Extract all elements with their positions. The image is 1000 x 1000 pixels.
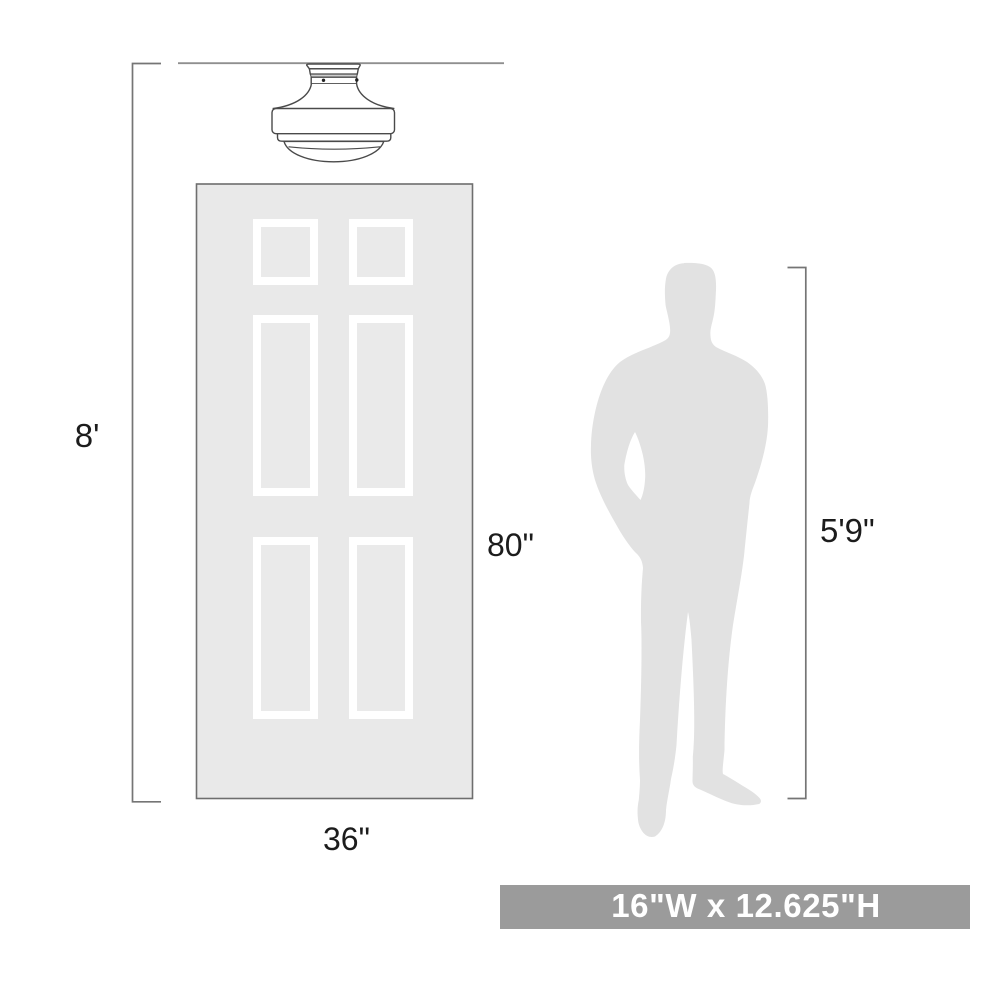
svg-text:8': 8' (75, 417, 100, 454)
svg-text:16"W x 12.625"H: 16"W x 12.625"H (611, 887, 881, 924)
svg-text:36": 36" (323, 821, 370, 857)
svg-text:5'9": 5'9" (820, 512, 875, 549)
svg-text:80": 80" (487, 527, 534, 563)
